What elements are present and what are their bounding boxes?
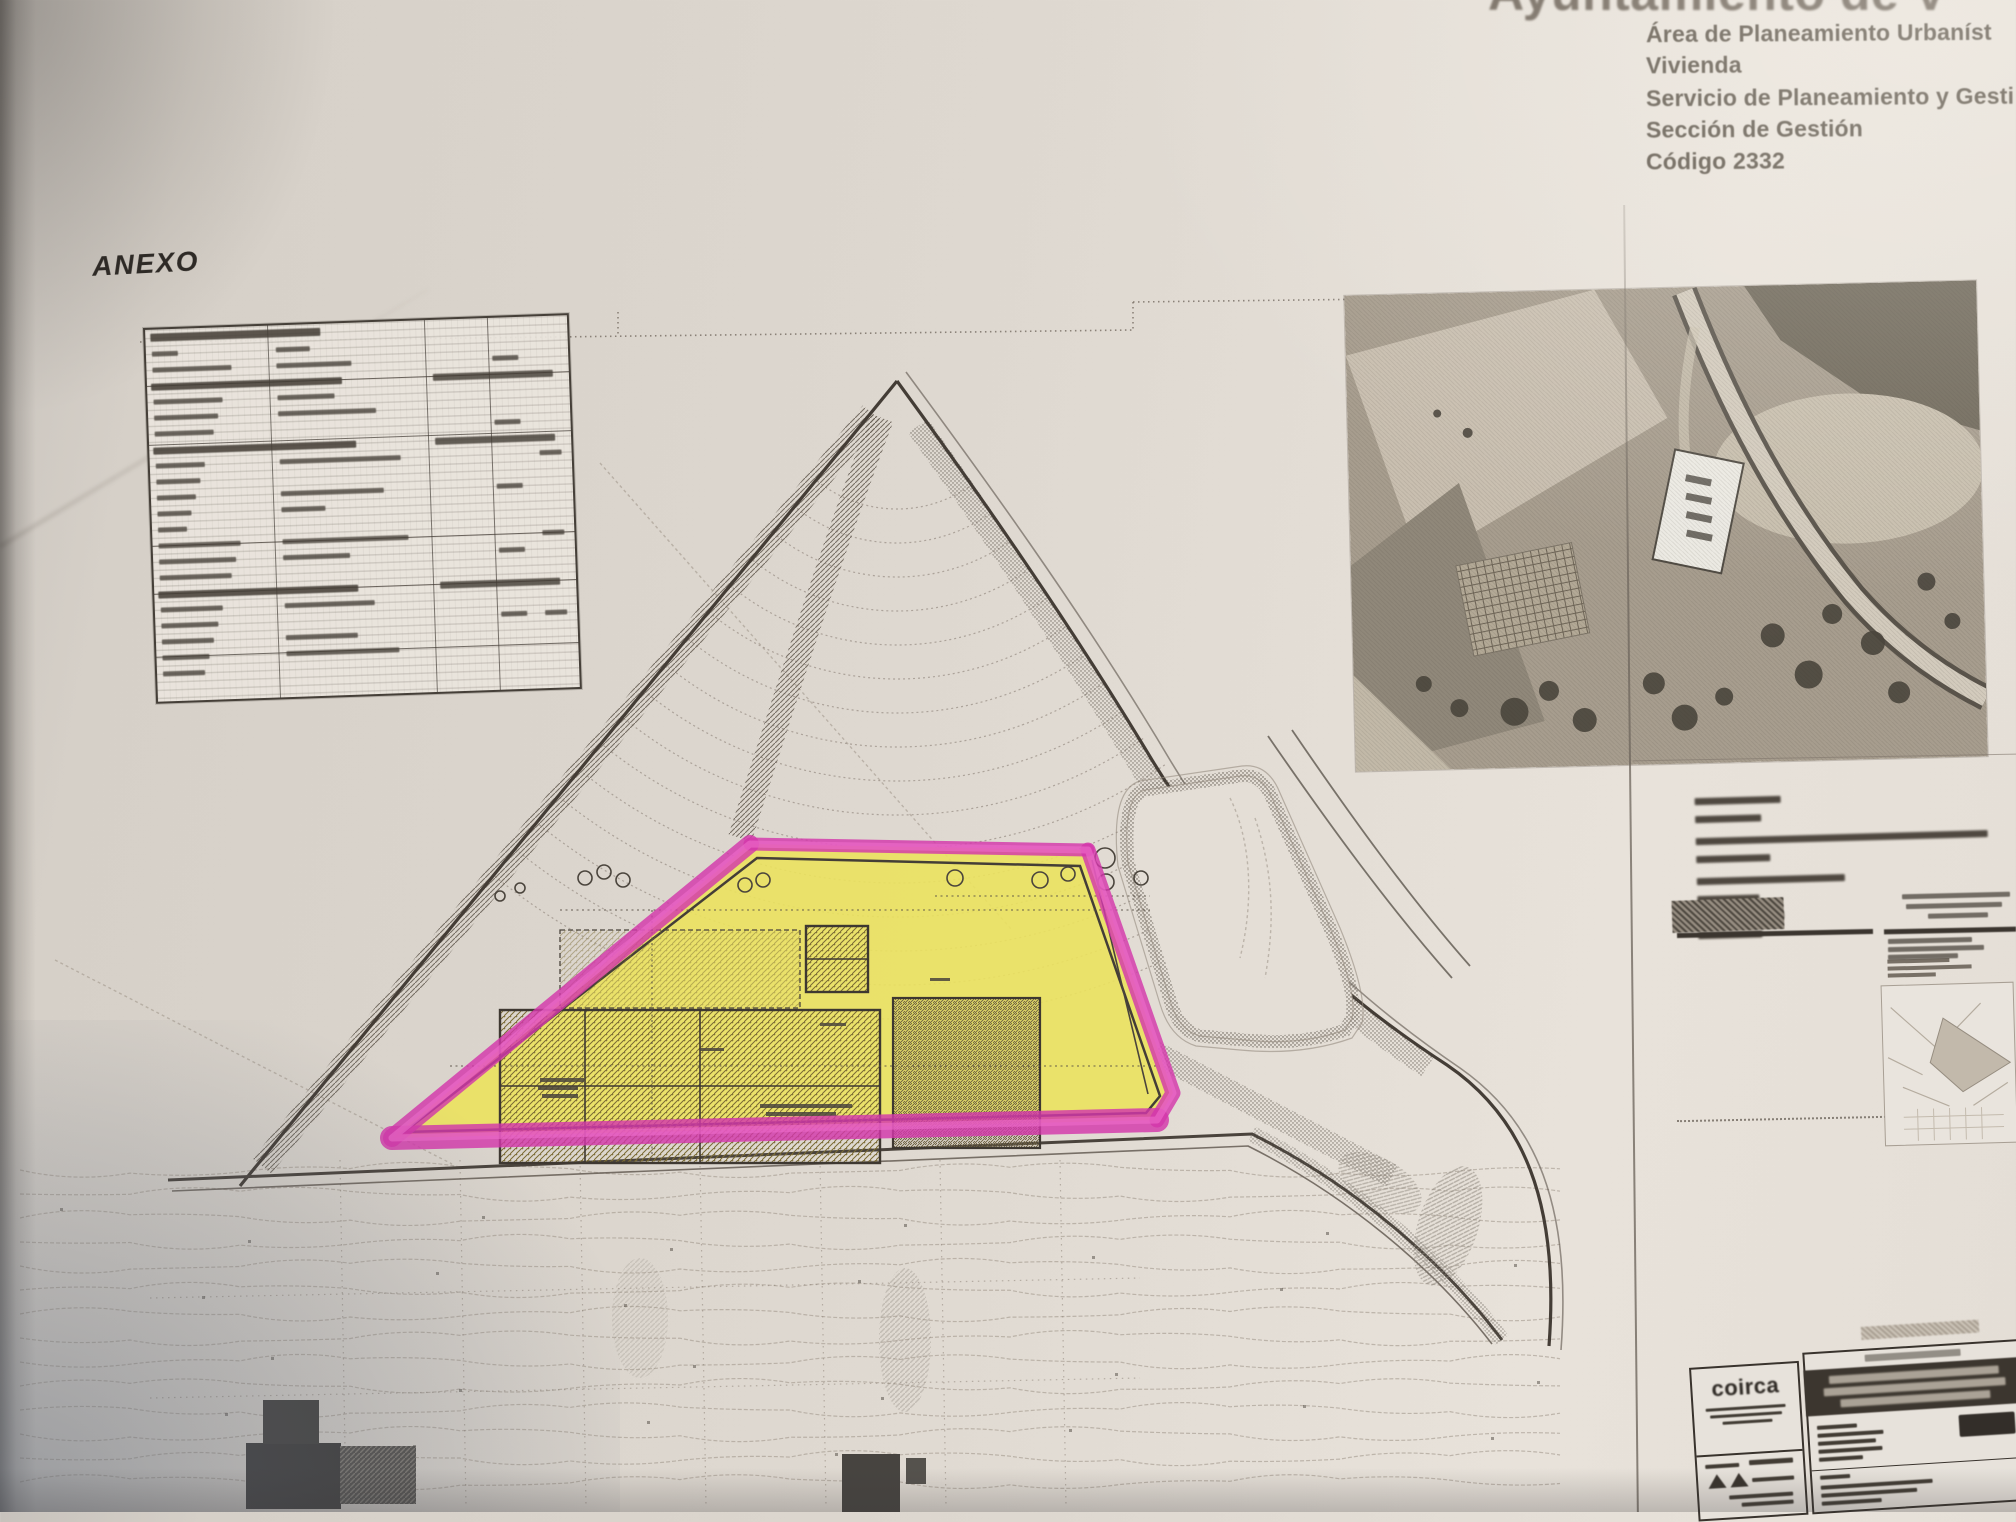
contour-line [599, 278, 1195, 679]
text-smudge [286, 647, 399, 656]
text-smudge [494, 419, 520, 425]
contour-line [20, 1331, 1560, 1346]
survey-mark [271, 1357, 274, 1360]
existing-buildings-dark [246, 1400, 926, 1512]
text-smudge [161, 605, 223, 612]
tree-canopies [1409, 397, 1963, 737]
text-smudge [542, 529, 564, 535]
text-smudge [497, 483, 523, 489]
white-warehouse-building [1653, 449, 1744, 573]
text-smudge [163, 670, 205, 676]
project-data-cell [1802, 1339, 2016, 1514]
location-thumbnail-map [1879, 954, 2016, 1154]
cadastral-line [940, 1160, 946, 1506]
contour-line [497, 278, 1297, 781]
text-smudge [440, 578, 560, 589]
text-smudge [154, 397, 223, 404]
text-smudge [277, 393, 334, 400]
text-smudge [157, 494, 196, 500]
annex-title: ANEXO [91, 245, 200, 283]
contour-line [20, 1354, 1560, 1369]
text-smudge [1821, 1488, 1917, 1498]
text-smudge [1818, 1446, 1882, 1454]
text-smudge [540, 449, 562, 455]
survey-mark [1326, 1232, 1329, 1235]
stamp-mark [1730, 1472, 1749, 1487]
aerial-photo-image [1344, 280, 1987, 771]
text-smudge [150, 328, 320, 342]
highlighted-site-area [392, 844, 1173, 1163]
text-smudge [156, 462, 205, 469]
legend-line-smudge [1696, 830, 1988, 845]
cadastral-line [820, 1160, 826, 1506]
text-smudge [1818, 1438, 1876, 1446]
text-smudge [283, 553, 350, 560]
text-smudge [281, 488, 384, 497]
text-smudge [282, 535, 408, 544]
text-smudge [1817, 1430, 1883, 1438]
text-smudge [276, 361, 351, 369]
legend-line-smudge [1697, 874, 1845, 885]
survey-mark [1491, 1437, 1494, 1440]
text-smudge [280, 455, 401, 464]
survey-mark [1303, 1405, 1306, 1408]
vegetation-patches [612, 1139, 1496, 1412]
photographed-planning-document: { "header": { "municipality_partial": "A… [0, 0, 2016, 1512]
contour-line [667, 278, 1127, 611]
stamp-mark [1708, 1474, 1727, 1489]
text-smudge [162, 654, 209, 661]
cadastral-line [1060, 1160, 1066, 1506]
survey-mark [670, 1248, 673, 1251]
text-smudge [285, 600, 375, 608]
header-code: Código 2332 [1646, 148, 1785, 176]
text-smudge [156, 478, 200, 485]
text-smudge [159, 557, 236, 565]
survey-mark [1280, 1288, 1283, 1291]
aerial-photo [1344, 280, 1987, 771]
text-smudge [159, 541, 241, 549]
graded-building-pad [1116, 730, 1470, 1052]
text-smudge [276, 346, 310, 352]
survey-mark [248, 1240, 251, 1243]
text-smudge [155, 430, 214, 437]
text-smudge [545, 609, 567, 615]
text-smudge [158, 527, 187, 533]
contour-line [20, 1427, 1560, 1442]
text-smudge [157, 510, 191, 516]
legend-line-smudge [1888, 937, 1972, 944]
text-smudge [492, 355, 518, 361]
survey-mark [858, 1280, 861, 1283]
text-smudge [1742, 1500, 1794, 1507]
text-smudge [501, 611, 527, 617]
contour-line [20, 1379, 1560, 1394]
legend-line-smudge [1888, 945, 1984, 952]
survey-mark [904, 1224, 907, 1227]
survey-mark [202, 1296, 205, 1299]
contour-line [531, 278, 1263, 747]
survey-mark [225, 1413, 228, 1416]
text-smudge [161, 622, 218, 629]
contour-line [20, 1258, 1560, 1273]
surface-areas-table [143, 313, 582, 704]
text-smudge [433, 370, 553, 381]
legend-line-smudge [1696, 854, 1770, 863]
survey-mark [835, 1453, 838, 1456]
coirca-logo: coirca [1692, 1371, 1799, 1404]
text-smudge [1817, 1423, 1857, 1430]
contour-line [701, 278, 1093, 577]
header-service: Servicio de Planeamiento y Gesti [1646, 83, 2014, 113]
contour-line [20, 1210, 1560, 1225]
architect-stamp-cell: coirca [1689, 1361, 1808, 1522]
cadastral-line [460, 1160, 466, 1506]
text-smudge [499, 547, 525, 553]
cadastral-line [150, 1378, 1140, 1398]
text-smudge [154, 413, 218, 420]
text-smudge [1820, 1474, 1850, 1480]
consultant-logo [1958, 1411, 2015, 1436]
cell-divider [1697, 1449, 1803, 1458]
text-smudge [1865, 1349, 1961, 1362]
project-title-banner [1803, 1357, 2016, 1417]
contour-line [463, 278, 1331, 815]
contour-line [565, 278, 1229, 713]
right-column-dotted-divider [1677, 1116, 1889, 1122]
contour-line [20, 1306, 1560, 1321]
title-block: coirca [1686, 1331, 2016, 1522]
legend-line-smudge [1695, 814, 1761, 823]
text-smudge [1749, 1458, 1793, 1466]
text-smudge [160, 573, 232, 581]
survey-mark [647, 1421, 650, 1424]
header-section: Sección de Gestión [1646, 115, 1863, 144]
survey-mark [459, 1389, 462, 1392]
cadastral-line [580, 1160, 586, 1506]
text-smudge [158, 585, 358, 599]
survey-mark [1537, 1381, 1540, 1384]
contour-line [20, 1282, 1560, 1297]
legend-line-smudge [1695, 796, 1781, 805]
title-block-heading-smudge [1861, 1320, 1980, 1340]
text-smudge [152, 351, 178, 357]
header-department: Área de Planeamiento Urbaníst [1646, 19, 1992, 48]
header-area: Vivienda [1646, 52, 1742, 80]
legend-logo-strip [1671, 897, 1784, 933]
text-smudge [286, 633, 358, 641]
text-smudge [1729, 1492, 1793, 1500]
document-header: Ayuntamiento de V Área de Planeamiento U… [1450, 0, 2016, 196]
contour-lines-lower [20, 1162, 1560, 1489]
contour-line [20, 1403, 1560, 1418]
text-smudge [153, 441, 356, 455]
survey-mark [60, 1208, 63, 1211]
text-smudge [151, 377, 342, 391]
text-smudge [162, 638, 214, 645]
text-smudge [1710, 1411, 1782, 1419]
survey-mark [881, 1397, 884, 1400]
survey-mark [1092, 1256, 1095, 1259]
text-smudge [1819, 1455, 1863, 1462]
text-smudge [1705, 1463, 1739, 1469]
text-smudge [1722, 1419, 1772, 1425]
survey-mark [693, 1365, 696, 1368]
survey-mark [1514, 1264, 1517, 1267]
survey-mark [482, 1216, 485, 1219]
survey-mark [1115, 1373, 1118, 1376]
text-smudge [152, 365, 231, 373]
text-smudge [278, 408, 376, 416]
text-smudge [281, 506, 325, 513]
text-smudge [1822, 1498, 1882, 1506]
text-smudge [1752, 1475, 1794, 1482]
survey-mark [436, 1272, 439, 1275]
survey-mark [1069, 1429, 1072, 1432]
